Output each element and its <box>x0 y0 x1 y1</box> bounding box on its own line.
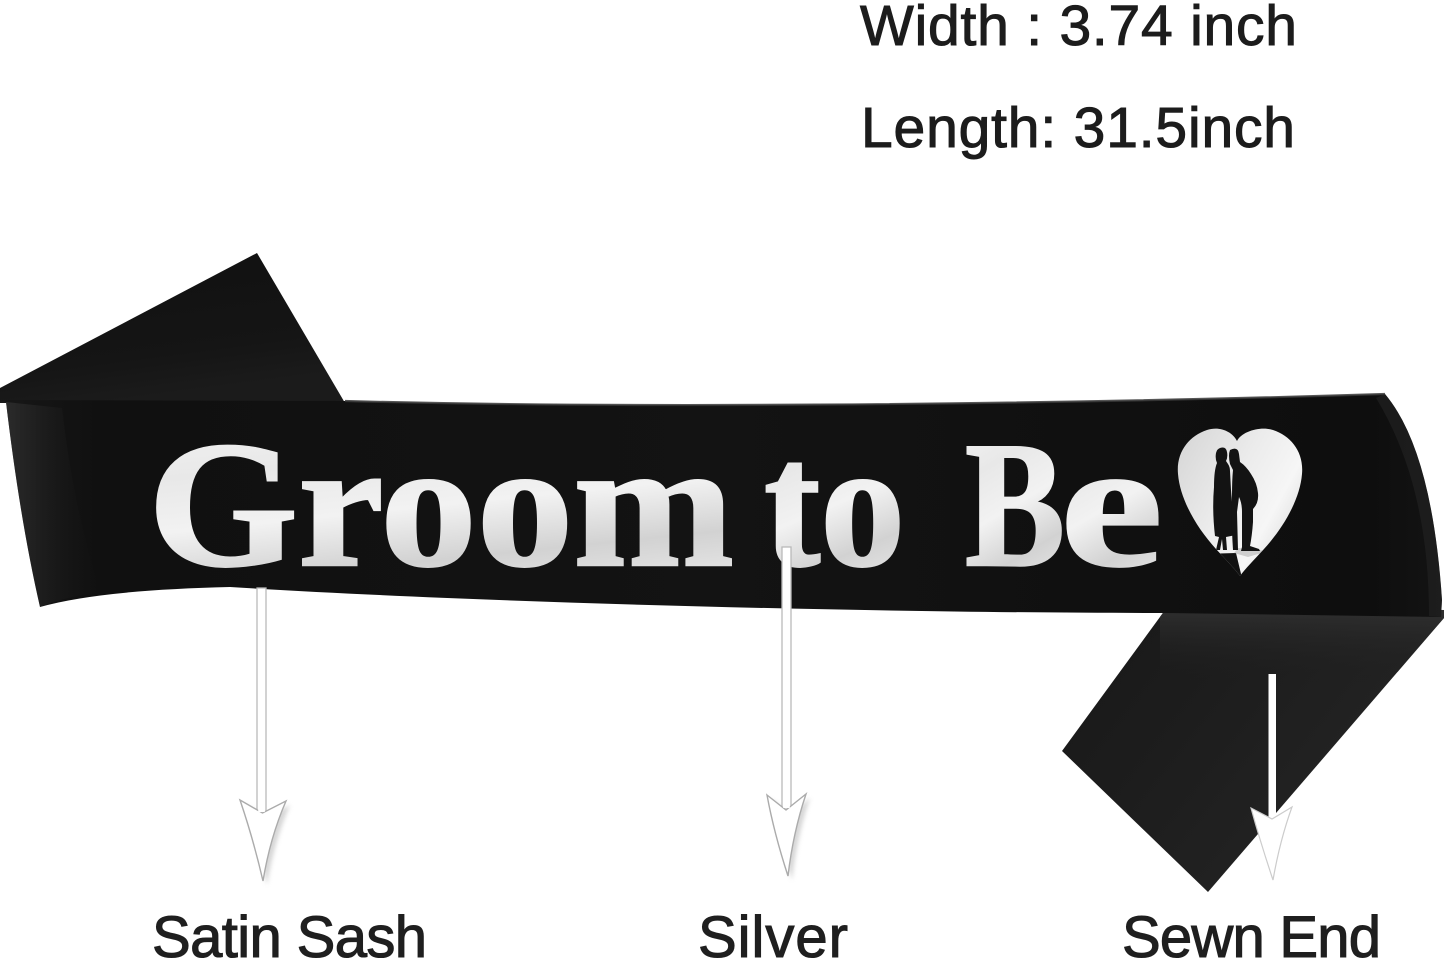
svg-text:Groom: Groom <box>148 405 734 604</box>
svg-text:Satin Sash: Satin Sash <box>152 905 427 965</box>
svg-text:Silver: Silver <box>698 905 848 965</box>
svg-text:Width : 3.74 inch: Width : 3.74 inch <box>860 0 1297 58</box>
svg-text:B: B <box>965 405 1065 604</box>
svg-text:Length: 31.5inch: Length: 31.5inch <box>861 96 1295 160</box>
svg-text:Sewn End: Sewn End <box>1122 905 1381 965</box>
svg-text:e: e <box>1060 405 1163 604</box>
